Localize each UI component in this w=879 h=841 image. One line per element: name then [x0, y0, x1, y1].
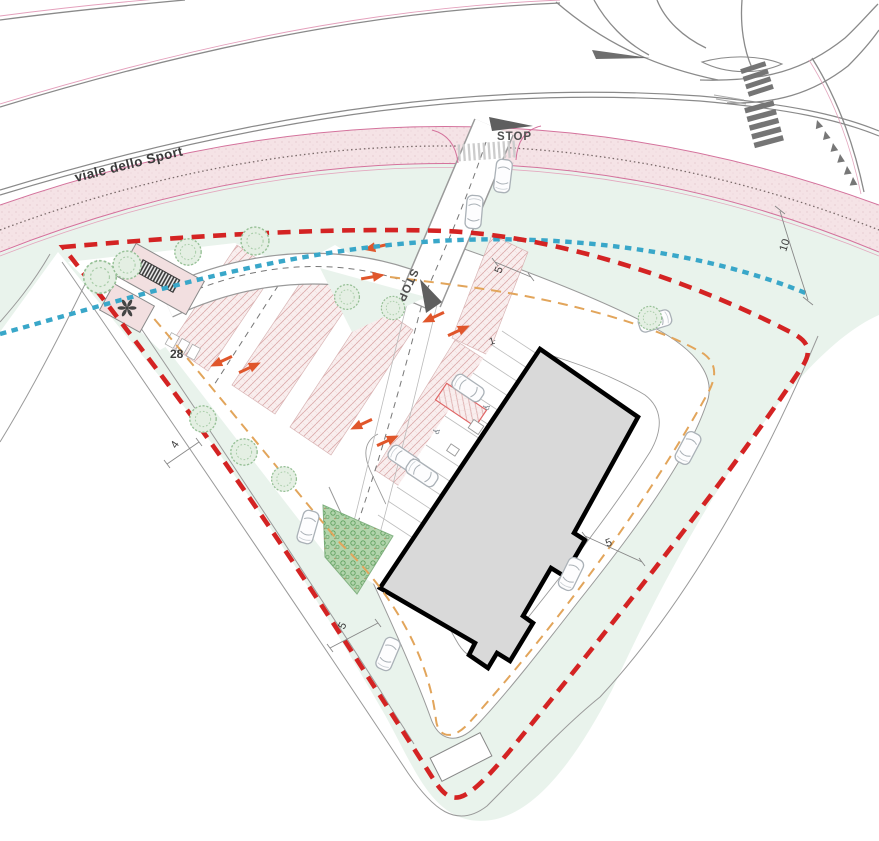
- tree-icon: [241, 227, 270, 256]
- tree-icon: [113, 251, 142, 280]
- tree-icon: [271, 466, 297, 492]
- site-plan-drawing: STOP STOP ♿ ♿ viale dello Sport 10 5 5 5…: [0, 0, 879, 841]
- zebra-crossing-north: [740, 61, 774, 97]
- tree-icon: [174, 238, 201, 265]
- edge-chevron-icons: [814, 120, 860, 189]
- junction-paint-wedge: [592, 50, 650, 59]
- dimension-label-parking: 28: [170, 347, 184, 361]
- tree-icon: [189, 405, 216, 432]
- car-icon: [493, 159, 513, 194]
- dimension-label-road: 4: [169, 439, 182, 451]
- stop-label-entrance: STOP: [497, 131, 532, 143]
- zebra-crossing-south: [744, 100, 784, 148]
- car-icon: [465, 195, 484, 229]
- tree-icon: [334, 284, 360, 310]
- tree-icon: [230, 438, 257, 465]
- site-plan-canvas: STOP STOP ♿ ♿ viale dello Sport 10 5 5 5…: [0, 0, 879, 841]
- tree-icon: [83, 260, 117, 294]
- tree-icon: [638, 306, 662, 330]
